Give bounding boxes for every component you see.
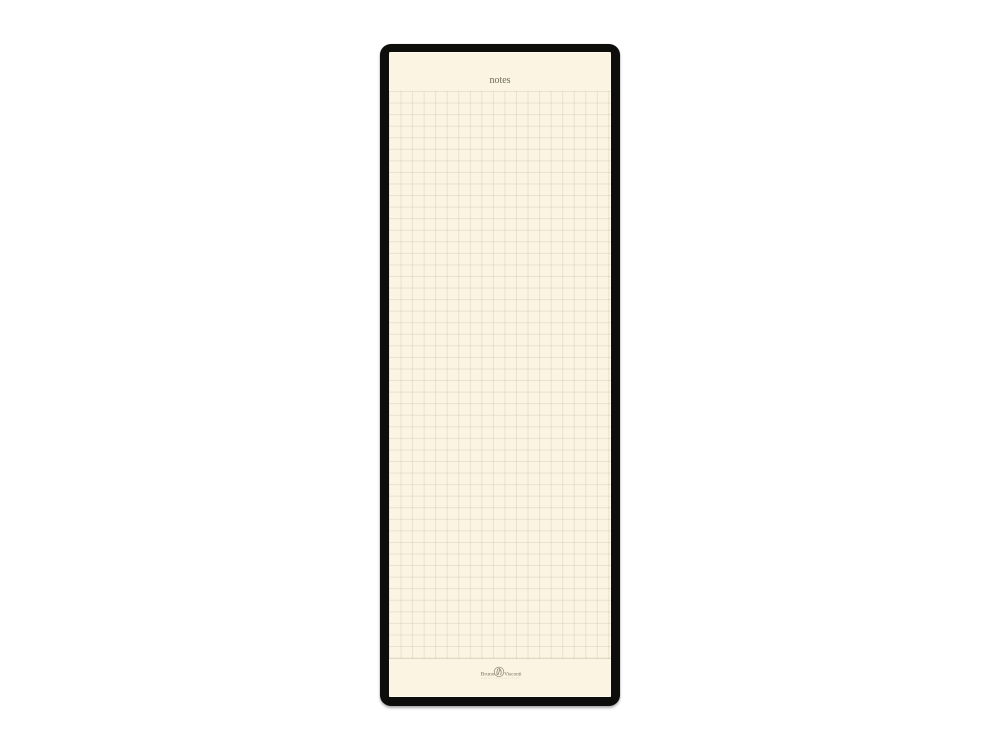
svg-text:BRUNO VISCONTI ITALY: BRUNO VISCONTI ITALY (481, 677, 520, 680)
